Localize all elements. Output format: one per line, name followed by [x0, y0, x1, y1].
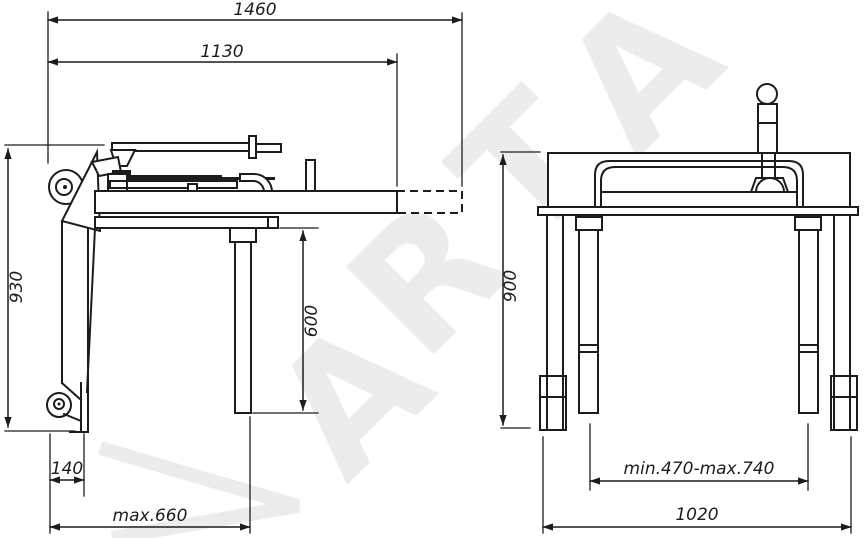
dim-leg-spread: min.470-max.740 [624, 459, 775, 479]
watermark: A R T A [100, 0, 759, 538]
pump-handle-lever [92, 136, 281, 177]
piston-end-cap [240, 174, 272, 192]
dim-overall-length: 1460 [233, 0, 276, 20]
right-inner-leg [795, 217, 821, 413]
pump-knob [757, 84, 777, 104]
under-shelf [95, 217, 278, 228]
left-inner-leg [576, 217, 602, 413]
base-slab [538, 207, 858, 215]
bottom-caster-wheel [47, 393, 81, 421]
dim-overall-width: 1020 [675, 505, 718, 525]
technical-drawing-page: A R T A [0, 0, 866, 538]
dim-overall-height: 930 [7, 271, 27, 303]
drawing-canvas: A R T A [0, 0, 866, 538]
platform-fork-bar [95, 191, 397, 213]
dim-leg-clearance: 600 [302, 305, 322, 337]
dim-platform-length: 1130 [200, 42, 243, 62]
dim-base-depth: max.660 [113, 506, 188, 526]
right-outer-leg [831, 215, 857, 430]
pump-post [757, 84, 777, 153]
hydraulic-mechanism [108, 174, 275, 192]
platform-stop-post [306, 160, 315, 191]
dim-caster-offset: 140 [51, 459, 83, 479]
dim-front-height: 900 [501, 270, 521, 302]
